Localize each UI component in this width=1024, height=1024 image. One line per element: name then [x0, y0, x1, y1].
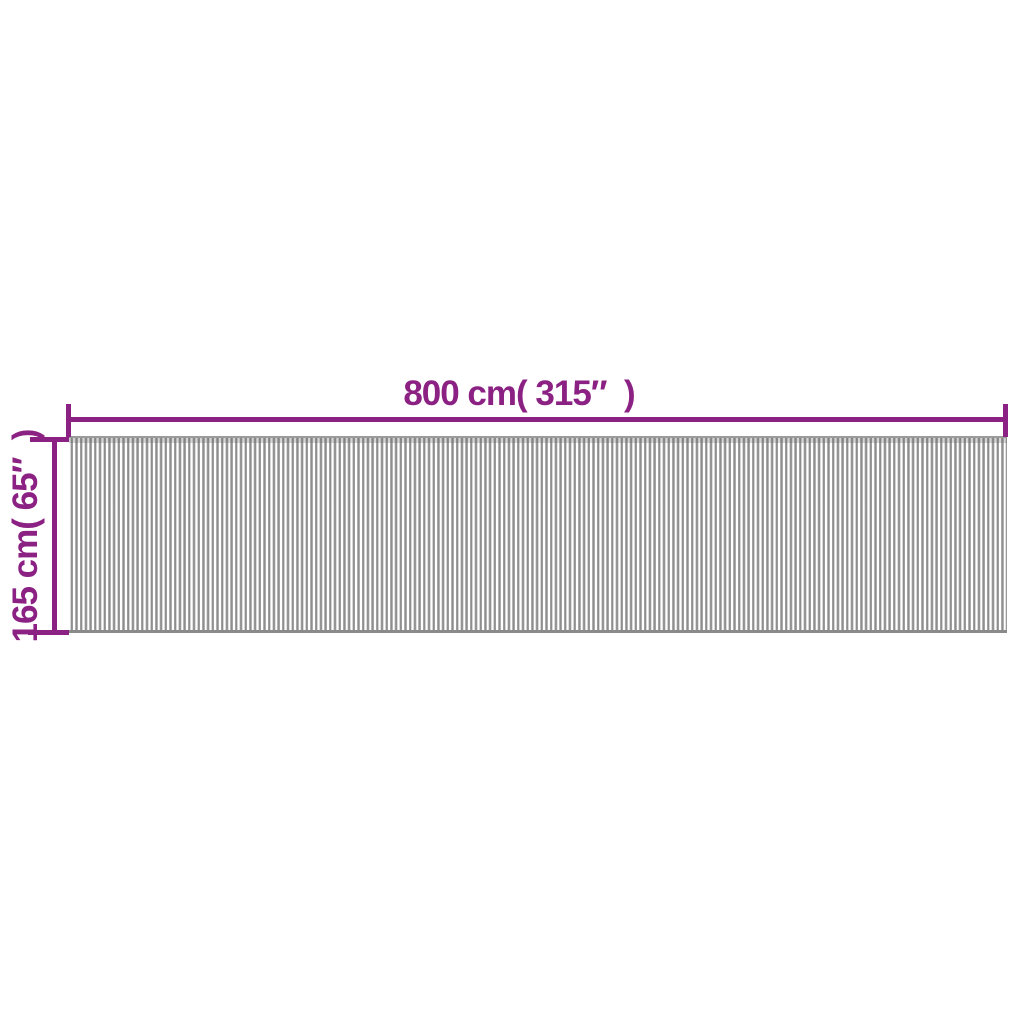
width-dimension-line: [66, 417, 1008, 422]
height-dimension-top-tick: [30, 437, 69, 442]
height-dimension-line: [52, 437, 57, 635]
height-dimension-label: 165 cm( 65″ ): [7, 430, 45, 643]
height-dimension-bottom-tick: [28, 630, 69, 635]
mat-illustration: [69, 436, 1007, 633]
dimension-diagram: 800 cm( 315″ ) 165 cm( 65″ ): [0, 0, 1024, 1024]
width-dimension-right-tick: [1003, 404, 1008, 437]
width-dimension-label: 800 cm( 315″ ): [69, 375, 969, 413]
width-dimension-left-tick: [66, 404, 71, 437]
